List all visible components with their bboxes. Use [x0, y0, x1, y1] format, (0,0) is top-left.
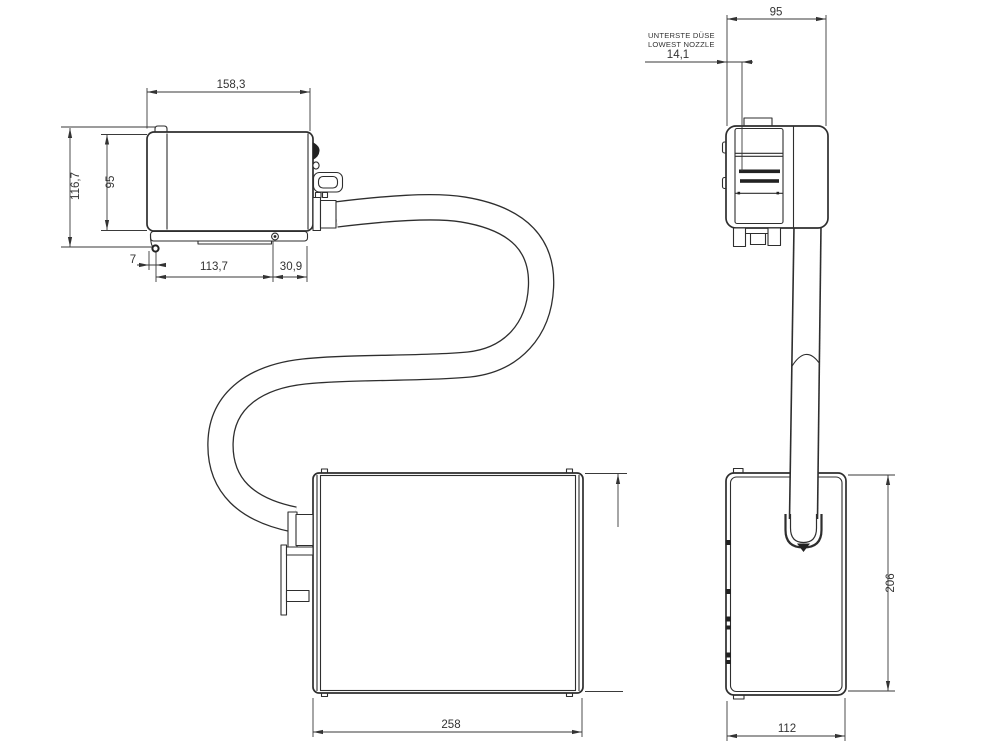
dim-total-height: 116,7: [70, 172, 82, 200]
left-view: [147, 126, 583, 697]
bracket-plate: [281, 545, 287, 615]
hose-fitting-a: [313, 198, 321, 231]
dim-lowest-nozzle-offset: 14,1: [667, 49, 689, 61]
nozzle-slot-upper: [739, 170, 780, 174]
technical-drawing-page: 158,3 116,7 95 7 113,7 30,9 258 95 UNTER…: [0, 0, 1000, 750]
side-port: [313, 162, 319, 169]
head-body: [147, 132, 313, 231]
tank-body: [313, 473, 583, 693]
dim-body-height: 95: [105, 176, 117, 189]
dim-lowest-point-offset: 7: [130, 254, 136, 266]
tank-front-body: [726, 473, 846, 695]
dim-head-width: 95: [770, 7, 783, 19]
down-tube: [786, 226, 822, 552]
two-view-technical-drawing: 158,3 116,7 95 7 113,7 30,9 258 95 UNTER…: [0, 0, 1000, 750]
base-plate: [151, 232, 308, 242]
dim-tank-height: 206: [885, 573, 897, 592]
handle-outer: [314, 173, 343, 193]
dim-tank-depth: 112: [778, 723, 796, 735]
note-nozzle-de: UNTERSTE DÜSE: [648, 31, 715, 40]
dim-connector-length: 30,9: [280, 261, 302, 273]
head-bracket: [734, 228, 781, 247]
plate-slot: [198, 241, 272, 244]
tank-length-view: [281, 469, 583, 697]
dim-tank-length: 258: [441, 719, 460, 731]
bracket-arm-top: [287, 547, 314, 555]
dim-head-total-width: 158,3: [217, 79, 246, 91]
nozzle-head-front: [723, 118, 829, 247]
note-nozzle-en: LOWEST NOZZLE: [648, 40, 715, 49]
lowest-point: [152, 245, 158, 251]
nozzle-slot-lower: [740, 179, 779, 183]
head-unit-side: [147, 126, 343, 252]
hose-fitting-b: [321, 201, 337, 229]
dim-base-plate-length: 113,7: [200, 261, 228, 273]
tank-front-view: [726, 469, 847, 700]
right-view: [723, 118, 847, 699]
bracket-arm-bottom: [287, 591, 310, 602]
side-wedge-detail: [313, 142, 320, 160]
